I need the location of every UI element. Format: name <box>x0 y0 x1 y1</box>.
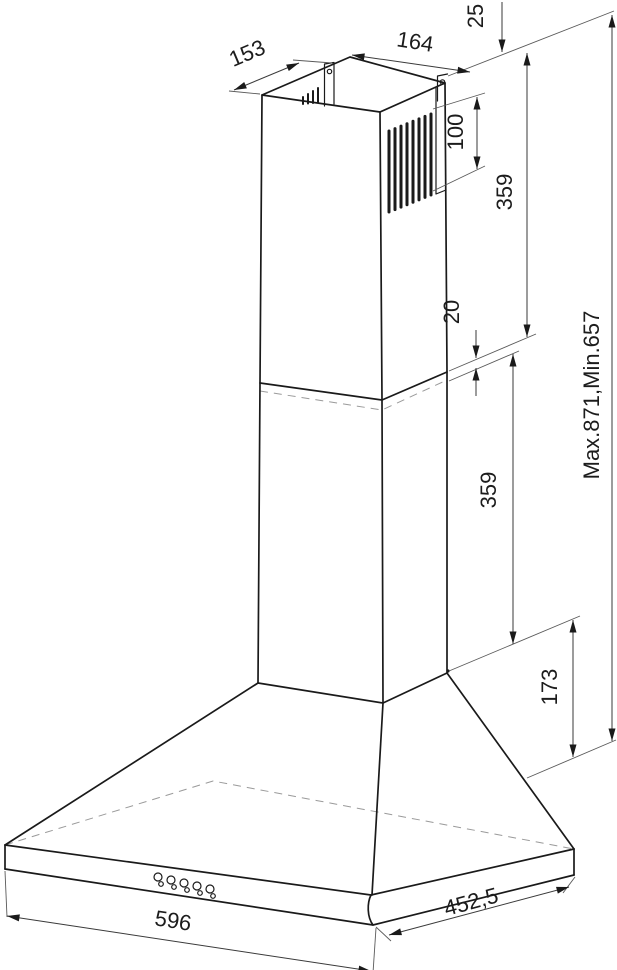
chimney-top-face <box>262 57 445 112</box>
label-section-overlap: 20 <box>439 300 464 324</box>
canopy-top-edges <box>258 673 447 703</box>
label-body-depth: 452,5 <box>441 883 501 921</box>
technical-drawing: 153 164 25 100 359 20 359 173 Max.871,Mi… <box>0 0 617 970</box>
mounting-tab-right <box>438 74 448 101</box>
extension-lines <box>5 11 616 970</box>
label-overall-height: Max.871,Min.657 <box>579 311 604 480</box>
label-canopy-height: 173 <box>537 669 562 706</box>
screw-hole-left <box>327 69 331 73</box>
vent-slots <box>389 114 431 212</box>
drawing-sheet: 153 164 25 100 359 20 359 173 Max.871,Mi… <box>0 0 617 970</box>
dimension-lines <box>7 2 612 970</box>
chimney-left-edge <box>258 95 262 683</box>
label-top-width: 164 <box>395 26 435 56</box>
chimney-right-edge <box>445 83 447 673</box>
chimney-front-edge <box>380 112 383 703</box>
canopy-slope-front <box>372 703 383 895</box>
chimney <box>258 57 448 703</box>
label-top-depth: 153 <box>225 34 269 71</box>
control-buttons[interactable] <box>154 873 215 898</box>
label-body-width: 596 <box>153 905 193 935</box>
dim-line-164 <box>352 55 470 72</box>
label-chimney-lower: 359 <box>476 472 501 509</box>
canopy-slope-left <box>5 683 258 845</box>
label-chimney-upper: 359 <box>492 174 517 211</box>
hidden-edges <box>5 380 574 849</box>
ext-bottom-height-reference <box>527 740 616 778</box>
rim-front-rounded-corner <box>368 895 373 925</box>
label-bracket-offset: 25 <box>463 4 488 28</box>
label-vent-slot-height: 100 <box>443 114 468 151</box>
